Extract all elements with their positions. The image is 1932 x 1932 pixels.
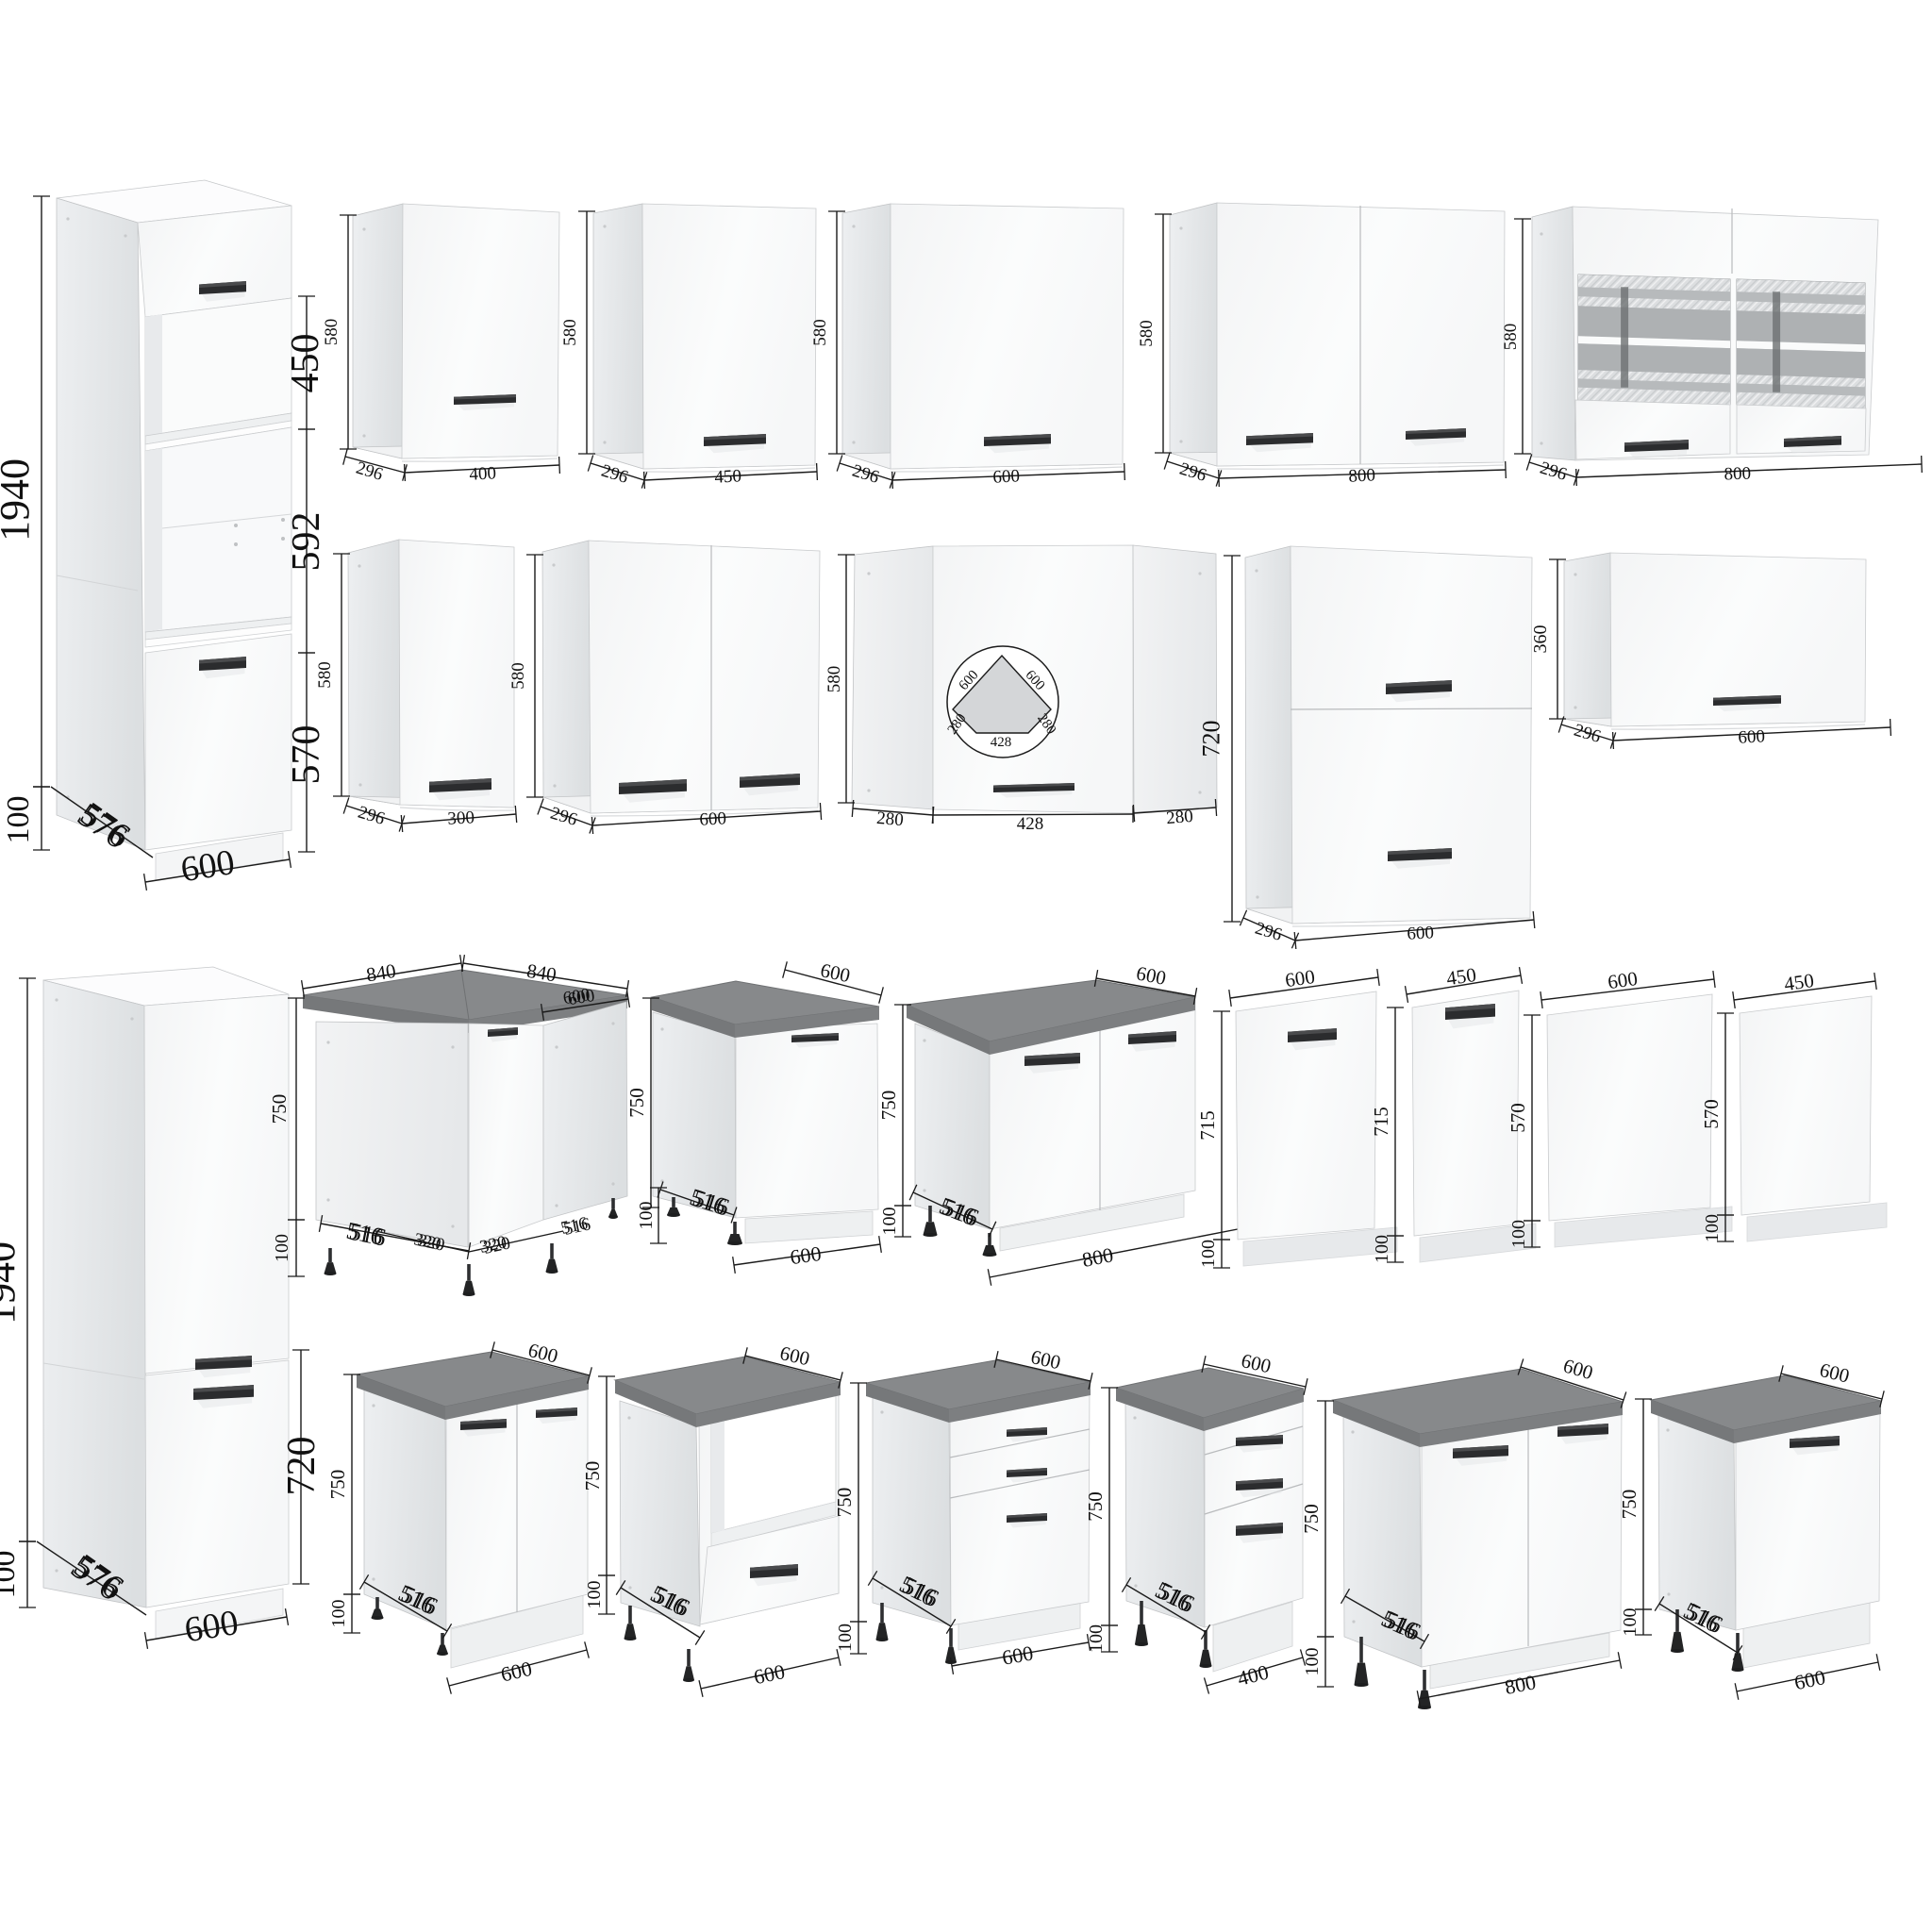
svg-text:100: 100 [879,1207,900,1236]
svg-text:720: 720 [280,1437,324,1496]
svg-text:600: 600 [699,808,727,829]
svg-text:840: 840 [364,959,397,987]
svg-text:100: 100 [1302,1648,1323,1676]
svg-text:1940: 1940 [0,1241,24,1324]
svg-text:600: 600 [1607,967,1640,993]
svg-text:428: 428 [1017,814,1044,834]
svg-text:750: 750 [1300,1504,1323,1534]
svg-text:750: 750 [1618,1490,1641,1520]
svg-text:600: 600 [1407,923,1435,943]
svg-text:750: 750 [581,1461,604,1491]
svg-text:570: 570 [1700,1099,1723,1129]
svg-text:100: 100 [584,1581,605,1609]
svg-text:428: 428 [991,735,1012,750]
svg-text:600: 600 [1738,726,1766,747]
svg-text:100: 100 [272,1234,292,1262]
svg-text:800: 800 [1348,465,1376,486]
svg-text:750: 750 [1084,1491,1107,1522]
svg-text:715: 715 [1370,1107,1392,1137]
svg-text:750: 750 [625,1088,648,1118]
svg-text:580: 580 [315,661,335,689]
svg-text:580: 580 [1137,320,1157,347]
svg-text:580: 580 [508,662,528,690]
svg-text:100: 100 [1702,1214,1723,1242]
svg-text:750: 750 [877,1091,900,1121]
svg-text:600: 600 [789,1241,823,1269]
svg-text:580: 580 [322,319,341,346]
svg-text:570: 570 [1507,1103,1529,1133]
svg-text:715: 715 [1196,1110,1219,1141]
svg-text:720: 720 [1198,721,1225,758]
svg-text:450: 450 [284,334,327,393]
svg-text:100: 100 [1620,1608,1641,1637]
svg-text:450: 450 [714,466,742,487]
svg-text:100: 100 [0,1551,22,1599]
svg-text:600: 600 [561,985,591,1008]
svg-text:450: 450 [1783,969,1816,995]
svg-text:300: 300 [447,808,475,828]
svg-text:800: 800 [1724,464,1751,485]
svg-text:600: 600 [1284,965,1317,991]
svg-text:600: 600 [182,1603,241,1650]
svg-text:100: 100 [636,1202,657,1230]
svg-text:100: 100 [1198,1240,1219,1268]
svg-text:360: 360 [1530,625,1551,654]
svg-text:600: 600 [178,842,238,890]
svg-text:450: 450 [1445,963,1478,990]
svg-text:100: 100 [1086,1624,1107,1653]
svg-text:280: 280 [1165,807,1193,828]
svg-text:750: 750 [833,1488,856,1518]
svg-text:580: 580 [1501,324,1521,351]
svg-text:570: 570 [285,725,328,785]
svg-text:580: 580 [810,319,830,346]
svg-text:100: 100 [1,796,36,844]
svg-text:280: 280 [875,808,904,830]
svg-text:580: 580 [560,319,580,346]
svg-text:100: 100 [1508,1220,1529,1248]
svg-text:750: 750 [326,1470,349,1500]
svg-text:592: 592 [285,512,328,572]
svg-text:100: 100 [1372,1235,1392,1263]
svg-text:580: 580 [824,666,844,693]
svg-text:600: 600 [992,466,1021,487]
svg-text:1940: 1940 [0,458,38,541]
svg-text:400: 400 [469,463,497,484]
svg-text:840: 840 [525,959,558,987]
svg-text:100: 100 [328,1600,349,1628]
svg-text:100: 100 [835,1624,856,1652]
svg-text:750: 750 [268,1094,291,1124]
